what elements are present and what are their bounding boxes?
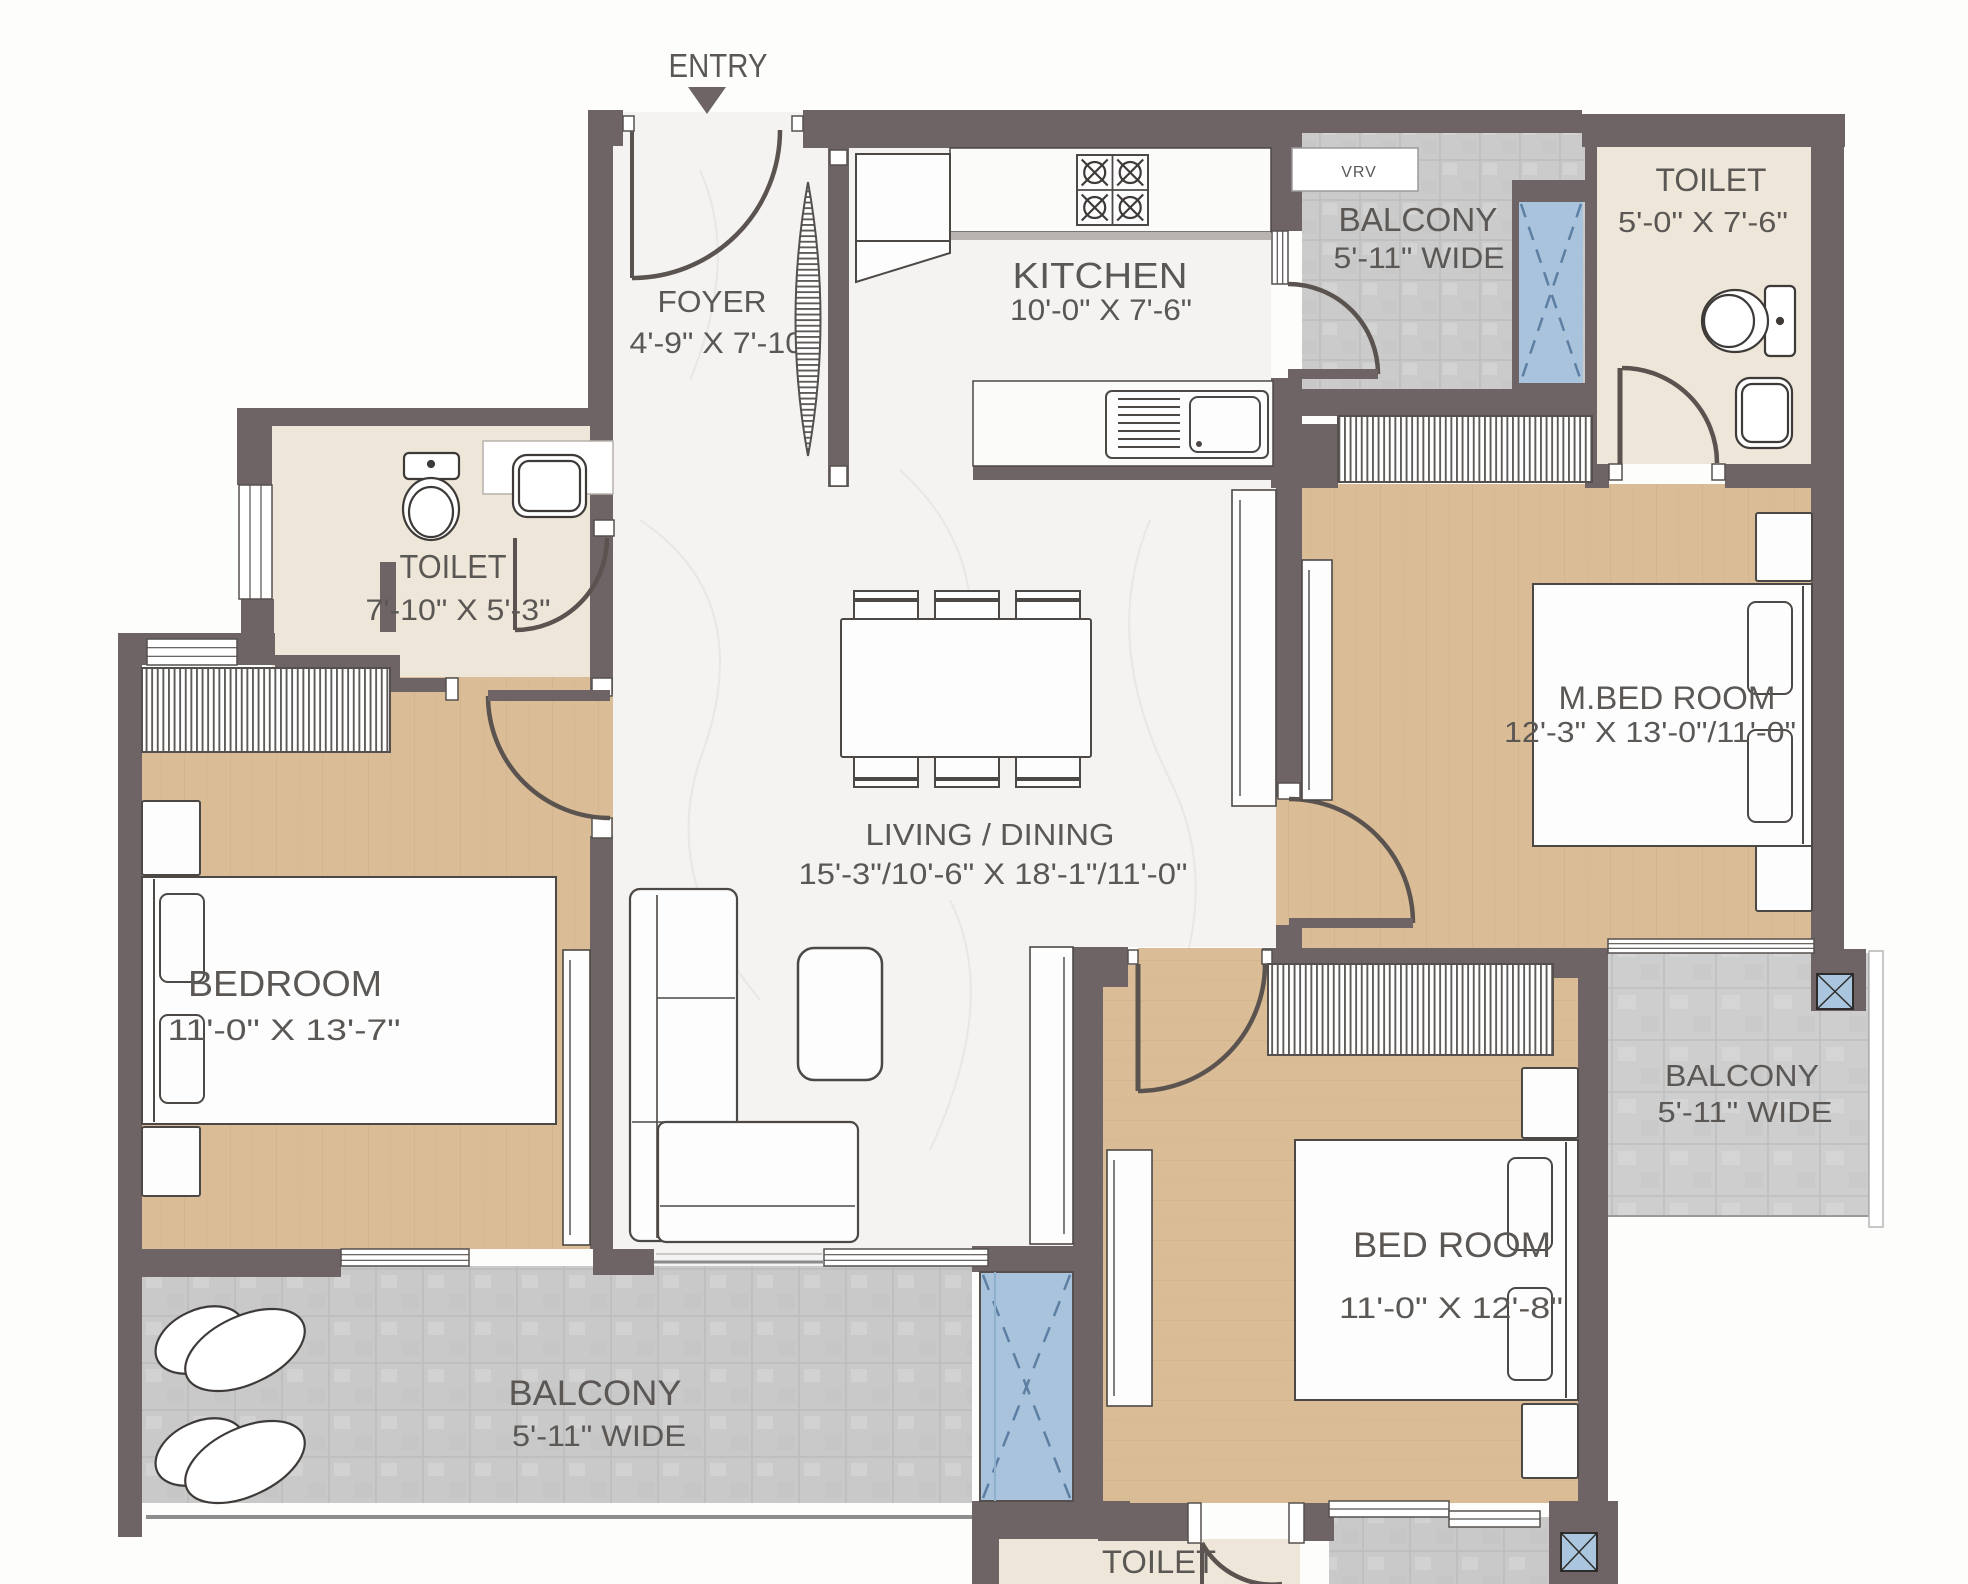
svg-text:BALCONY: BALCONY: [1339, 201, 1498, 238]
svg-text:VRV: VRV: [1341, 164, 1377, 181]
svg-text:5'-11" WIDE: 5'-11" WIDE: [1334, 242, 1505, 275]
svg-text:LIVING / DINING: LIVING / DINING: [866, 817, 1115, 852]
svg-text:10'-0" X 7'-6": 10'-0" X 7'-6": [1010, 294, 1192, 327]
svg-text:15'-3"/10'-6" X 18'-1"/11'-0": 15'-3"/10'-6" X 18'-1"/11'-0": [799, 858, 1188, 891]
svg-text:7'-10" X 5'-3": 7'-10" X 5'-3": [366, 594, 551, 627]
svg-text:TOILET: TOILET: [1102, 1544, 1216, 1580]
svg-text:11'-0" X 13'-7": 11'-0" X 13'-7": [168, 1014, 401, 1047]
svg-text:FOYER: FOYER: [658, 284, 767, 319]
svg-text:5'-11" WIDE: 5'-11" WIDE: [1658, 1097, 1833, 1129]
svg-text:TOILET: TOILET: [1656, 162, 1767, 198]
svg-text:BALCONY: BALCONY: [1665, 1058, 1819, 1093]
svg-text:4'-9" X 7'-10": 4'-9" X 7'-10": [630, 327, 815, 360]
svg-text:BEDROOM: BEDROOM: [188, 963, 382, 1004]
svg-text:BED ROOM: BED ROOM: [1353, 1226, 1551, 1265]
svg-text:12'-3" X 13'-0"/11'-0": 12'-3" X 13'-0"/11'-0": [1504, 717, 1796, 749]
svg-text:BALCONY: BALCONY: [509, 1374, 682, 1413]
svg-text:5'-11" WIDE: 5'-11" WIDE: [512, 1420, 686, 1453]
svg-text:ENTRY: ENTRY: [669, 47, 768, 84]
svg-text:M.BED ROOM: M.BED ROOM: [1559, 680, 1776, 716]
svg-text:5'-0" X 7'-6": 5'-0" X 7'-6": [1618, 207, 1788, 239]
svg-text:KITCHEN: KITCHEN: [1013, 255, 1188, 296]
svg-text:TOILET: TOILET: [400, 548, 507, 585]
svg-text:11'-0" X 12'-8": 11'-0" X 12'-8": [1339, 1292, 1563, 1325]
